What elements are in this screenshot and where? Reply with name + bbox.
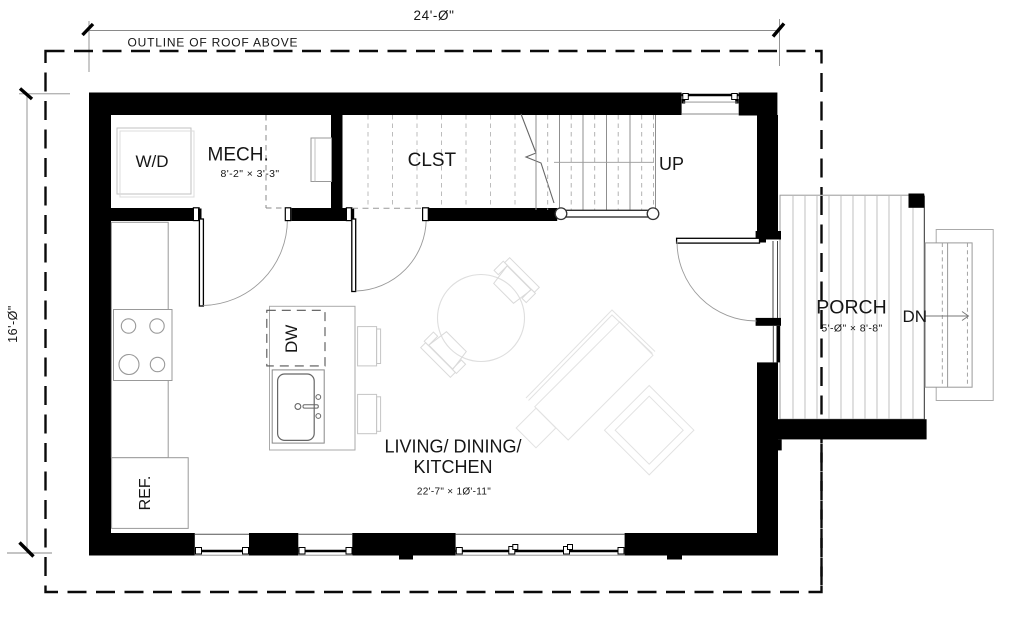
svg-text:OUTLINE OF ROOF ABOVE: OUTLINE OF ROOF ABOVE [128,36,299,50]
svg-text:24'-Ø": 24'-Ø" [414,8,455,23]
svg-text:8'-2" × 3'-3": 8'-2" × 3'-3" [221,168,280,180]
svg-text:UP: UP [659,154,684,174]
svg-text:22'-7" × 1Ø'-11": 22'-7" × 1Ø'-11" [417,487,491,498]
svg-text:CLST: CLST [408,150,457,171]
svg-text:MECH.: MECH. [208,145,269,166]
svg-text:PORCH: PORCH [816,297,886,319]
svg-text:5'-Ø" × 8'-8": 5'-Ø" × 8'-8" [821,323,882,335]
svg-text:KITCHEN: KITCHEN [413,457,492,477]
svg-text:LIVING/ DINING/: LIVING/ DINING/ [384,437,521,457]
svg-text:16'-Ø": 16'-Ø" [6,305,20,343]
svg-text:DW: DW [282,325,301,353]
svg-text:DN: DN [903,307,928,326]
svg-text:W/D: W/D [135,152,168,171]
svg-text:REF.: REF. [137,476,154,511]
